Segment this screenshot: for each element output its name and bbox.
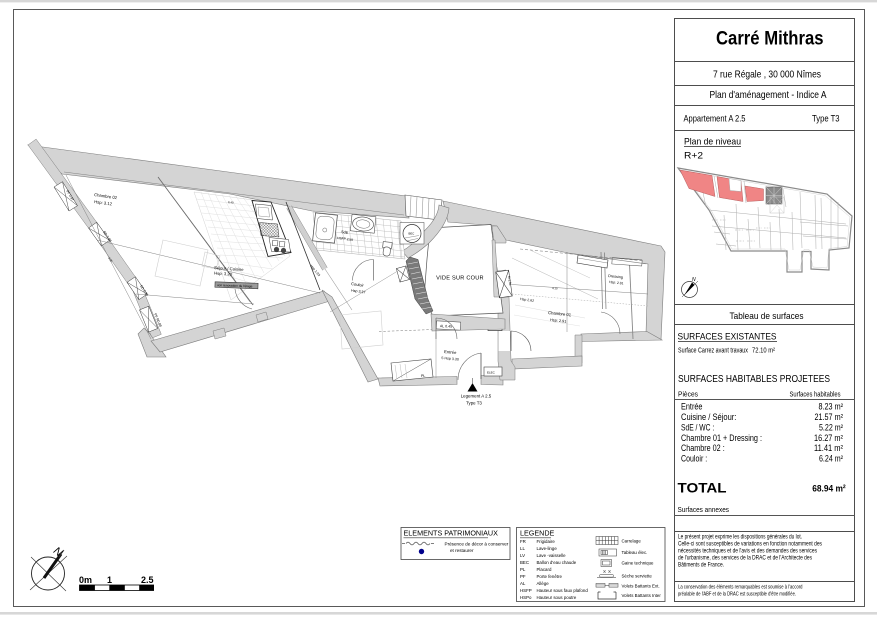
svg-text:Chambre 01: Chambre 01 [548, 310, 572, 317]
svg-text:68.94 m²: 68.94 m² [812, 484, 846, 495]
svg-text:Appartement A 2.5: Appartement A 2.5 [684, 114, 746, 125]
svg-text:Couloir: Couloir [351, 281, 365, 288]
svg-text:6.24 m²: 6.24 m² [819, 453, 843, 463]
svg-text:Bâtiments de France.: Bâtiments de France. [678, 562, 724, 569]
svg-text:Type T3: Type T3 [466, 401, 482, 406]
svg-text:Le présent projet exprime les: Le présent projet exprime les dispositio… [678, 534, 802, 541]
svg-text:BEC: BEC [520, 560, 529, 565]
svg-text:Surfaces annexes: Surfaces annexes [678, 505, 730, 514]
svg-text:Lave-linge: Lave-linge [537, 546, 558, 551]
svg-text:Volets Battants Inter: Volets Battants Inter [622, 593, 662, 598]
svg-text:Dressing: Dressing [608, 274, 623, 280]
svg-text:nécessités techniques et de l': nécessités techniques et de l'avis et de… [678, 548, 817, 555]
svg-text:Lave -vaisselle: Lave -vaisselle [537, 553, 567, 558]
svg-text:VIDE SUR COUR: VIDE SUR COUR [436, 276, 484, 282]
svg-text:SURFACES EXISTANTES: SURFACES EXISTANTES [678, 332, 777, 343]
svg-text:Ballon d'eau chaude: Ballon d'eau chaude [537, 560, 577, 565]
svg-text:0m: 0m [79, 575, 92, 585]
svg-text:ELEC: ELEC [487, 371, 496, 375]
svg-text:Type T3: Type T3 [812, 114, 840, 125]
svg-text:1: 1 [107, 575, 112, 585]
svg-text:Plan de niveau: Plan de niveau [684, 137, 741, 148]
svg-text:et restaurer: et restaurer [450, 548, 474, 553]
svg-text:11.41 m²: 11.41 m² [814, 443, 843, 453]
svg-text:Hauteur sous faux plafond: Hauteur sous faux plafond [537, 588, 589, 593]
svg-text:AL 0.45: AL 0.45 [440, 324, 452, 329]
svg-text:Gaine technique: Gaine technique [622, 561, 655, 566]
svg-text:Allège: Allège [537, 581, 550, 586]
svg-text:R+2: R+2 [684, 151, 703, 161]
svg-text:LL: LL [520, 546, 525, 551]
svg-text:ELEMENTS PATRIMONIAUX: ELEMENTS PATRIMONIAUX [404, 529, 499, 538]
svg-text:Chambre 01 + Dressing :: Chambre 01 + Dressing : [681, 433, 762, 443]
svg-text:6.40: 6.40 [228, 200, 234, 205]
svg-text:Tableau de surfaces: Tableau de surfaces [730, 311, 804, 322]
svg-text:Frigidaire: Frigidaire [537, 539, 556, 544]
svg-text:Celle-ci sont susceptibles de: Celle-ci sont susceptibles de variations… [678, 541, 822, 548]
svg-text:LEGENDE: LEGENDE [520, 529, 555, 538]
svg-text:Hsp 3.37: Hsp 3.37 [351, 289, 366, 295]
svg-text:SURFACES HABITABLES PROJETEES: SURFACES HABITABLES PROJETEES [678, 374, 830, 385]
svg-text:Hsp: 2.91: Hsp: 2.91 [609, 280, 624, 286]
svg-text:S Hsp 3.30: S Hsp 3.30 [441, 356, 459, 362]
svg-text:HSPo: HSPo [520, 595, 532, 600]
svg-text:72.10 m²: 72.10 m² [752, 348, 776, 355]
svg-text:2.5: 2.5 [141, 575, 154, 585]
svg-text:PL: PL [421, 374, 425, 378]
svg-text:Surfaces habitables: Surfaces habitables [790, 392, 841, 399]
svg-text:PF: PF [520, 574, 526, 579]
svg-text:HSFP: HSFP [520, 588, 532, 593]
svg-text:Présence de décor à conserver: Présence de décor à conserver [445, 542, 509, 547]
svg-text:LV: LV [520, 553, 525, 558]
svg-text:8.23 m²: 8.23 m² [819, 402, 844, 412]
svg-text:Pièces: Pièces [678, 392, 698, 399]
svg-text:AL: AL [520, 581, 526, 586]
svg-text:La conservation des éléments r: La conservation des éléments remarquable… [678, 585, 803, 591]
svg-text:16.27 m²: 16.27 m² [814, 433, 843, 443]
svg-text:N: N [51, 545, 65, 559]
svg-text:Carrelage: Carrelage [622, 539, 642, 544]
svg-text:BEC: BEC [409, 232, 415, 236]
svg-text:Surface Carrez avant travaux: Surface Carrez avant travaux [678, 348, 748, 355]
svg-text:Legement A 2.5: Legement A 2.5 [461, 394, 492, 399]
svg-text:7 rue Régale , 30 000 Nîmes: 7 rue Régale , 30 000 Nîmes [713, 69, 821, 81]
svg-text:Chambre 02 :: Chambre 02 : [681, 443, 725, 453]
svg-text:Sèche serviette: Sèche serviette [622, 574, 653, 579]
svg-text:Cuisine / Séjour:: Cuisine / Séjour: [681, 412, 736, 422]
svg-text:Hsp: 3.20: Hsp: 3.20 [214, 271, 233, 277]
svg-text:Tableau élec.: Tableau élec. [622, 550, 648, 555]
svg-text:Entrée: Entrée [681, 402, 703, 412]
svg-text:de l'urbanisme, des services d: de l'urbanisme, des services de la DRAC … [678, 555, 812, 562]
svg-text:4.10: 4.10 [552, 286, 558, 291]
svg-text:Entrée: Entrée [444, 349, 457, 355]
svg-text:Placard: Placard [537, 567, 552, 572]
svg-text:Porte fenêtre: Porte fenêtre [537, 574, 563, 579]
svg-text:Couloir :: Couloir : [681, 453, 707, 463]
svg-text:21.57 m²: 21.57 m² [815, 412, 844, 422]
svg-text:Hsp: 2.91: Hsp: 2.91 [550, 318, 567, 324]
svg-text:FR: FR [520, 539, 526, 544]
svg-text:Hauteur sous poutre: Hauteur sous poutre [537, 595, 577, 600]
svg-text:Volets Battants Ext.: Volets Battants Ext. [622, 584, 660, 589]
svg-text:TOTAL: TOTAL [678, 480, 727, 496]
svg-text:Carré Mithras: Carré Mithras [716, 29, 824, 50]
svg-text:PL: PL [520, 567, 526, 572]
svg-text:5.22 m²: 5.22 m² [819, 423, 843, 433]
svg-text:SdE / WC :: SdE / WC : [681, 423, 714, 433]
svg-text:Hsp 2.62: Hsp 2.62 [520, 297, 534, 303]
svg-text:N: N [692, 277, 696, 283]
svg-text:Plan d'aménagement - Indice A: Plan d'aménagement - Indice A [710, 89, 827, 101]
svg-text:Hsp: 3.12: Hsp: 3.12 [94, 199, 113, 207]
svg-text:préalable de l'ABF et de la DR: préalable de l'ABF et de la DRAC est sus… [678, 592, 796, 598]
